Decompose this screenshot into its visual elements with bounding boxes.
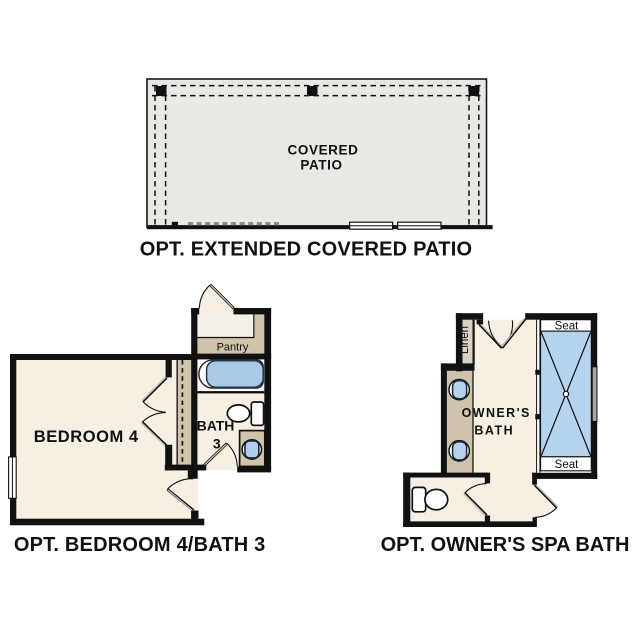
svg-text:OPT. EXTENDED COVERED PATIO: OPT. EXTENDED COVERED PATIO bbox=[140, 238, 472, 260]
svg-text:Seat: Seat bbox=[555, 320, 579, 332]
svg-text:OWNER'S: OWNER'S bbox=[462, 406, 531, 420]
svg-text:Pantry: Pantry bbox=[217, 342, 249, 354]
svg-text:OPT. BEDROOM 4/BATH 3: OPT. BEDROOM 4/BATH 3 bbox=[14, 534, 266, 556]
svg-text:BEDROOM 4: BEDROOM 4 bbox=[34, 428, 139, 446]
svg-text:BATH: BATH bbox=[197, 417, 235, 433]
svg-text:OPT. OWNER'S SPA BATH: OPT. OWNER'S SPA BATH bbox=[381, 534, 630, 556]
svg-text:COVERED: COVERED bbox=[288, 143, 359, 158]
svg-text:PATIO: PATIO bbox=[300, 157, 342, 172]
svg-text:BATH: BATH bbox=[474, 423, 514, 437]
svg-text:Seat: Seat bbox=[555, 459, 579, 471]
